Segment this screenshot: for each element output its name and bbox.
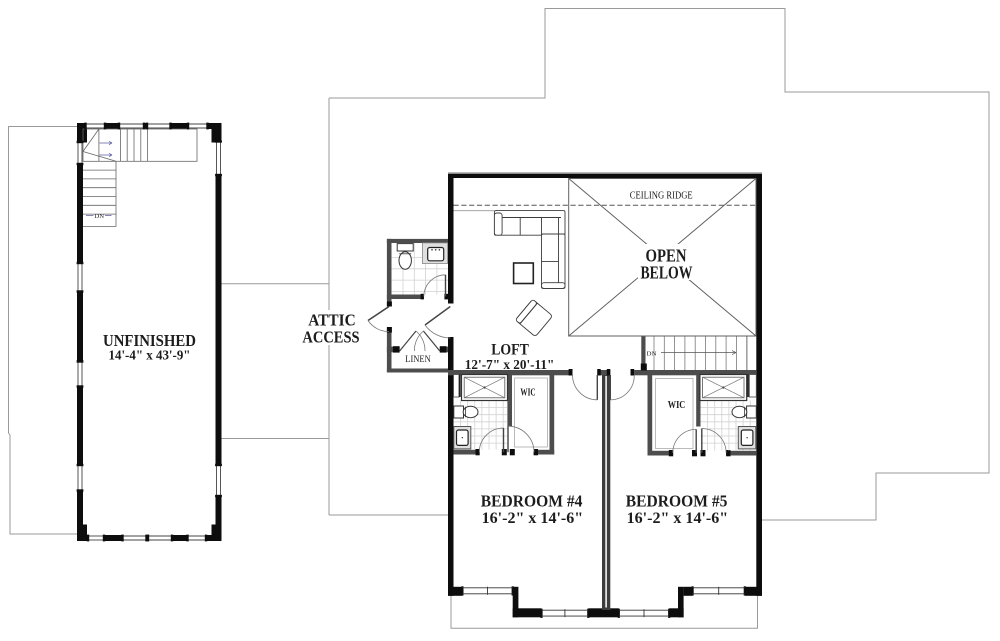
svg-text:BELOW: BELOW bbox=[641, 263, 693, 283]
svg-text:CEILING RIDGE: CEILING RIDGE bbox=[630, 190, 693, 201]
svg-text:ACCESS: ACCESS bbox=[302, 328, 359, 347]
svg-text:16'-2" x 14'-6": 16'-2" x 14'-6" bbox=[482, 510, 584, 527]
svg-text:14'-4" x 43'-9": 14'-4" x 43'-9" bbox=[109, 348, 191, 363]
svg-text:LINEN: LINEN bbox=[405, 354, 431, 364]
svg-text:DN: DN bbox=[647, 351, 657, 358]
svg-text:WIC: WIC bbox=[668, 399, 686, 411]
svg-text:BEDROOM #5: BEDROOM #5 bbox=[626, 491, 728, 510]
svg-text:16'-2" x 14'-6": 16'-2" x 14'-6" bbox=[627, 510, 729, 527]
svg-text:BEDROOM #4: BEDROOM #4 bbox=[481, 491, 583, 510]
svg-text:LOFT: LOFT bbox=[491, 341, 529, 358]
svg-text:WIC: WIC bbox=[520, 386, 535, 398]
svg-text:12'-7" x 20'-11": 12'-7" x 20'-11" bbox=[465, 357, 555, 372]
svg-text:DN: DN bbox=[95, 213, 105, 220]
